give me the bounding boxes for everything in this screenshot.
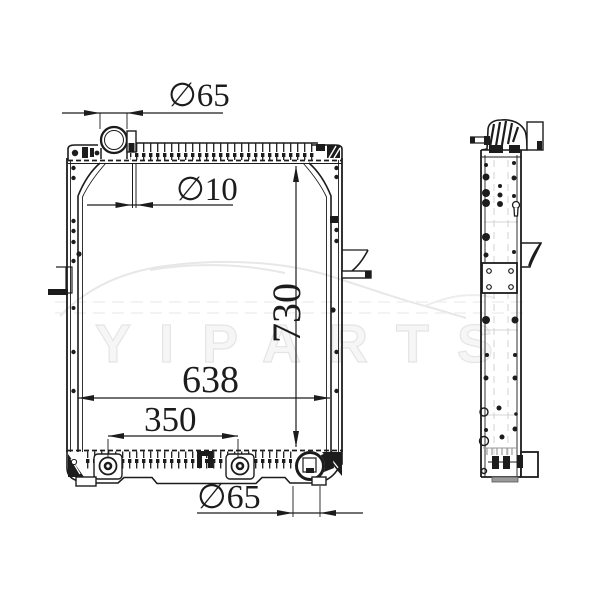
right-bracket [342, 250, 371, 278]
side-wing-bracket [521, 243, 541, 267]
dim-height: 730 [264, 166, 309, 447]
keyhole-slot [513, 202, 520, 217]
dim-bottom-diameter-label: ∅65 [197, 479, 261, 516]
dim-top-diameter: ∅65 [62, 78, 230, 129]
side-bracket-plate [482, 263, 517, 293]
dim-bottom-diameter: ∅65 [197, 479, 363, 517]
left-bracket [48, 267, 72, 295]
technical-drawing-canvas: YIPARTS [0, 0, 600, 600]
radiator-drawing: YIPARTS [0, 0, 600, 600]
side-view [470, 120, 543, 482]
filler-cap [95, 127, 136, 159]
dim-mount-spacing: 350 [108, 400, 238, 458]
dim-pipe-diameter: ∅10 [87, 172, 238, 208]
dim-pipe-diameter-label: ∅10 [176, 172, 238, 208]
mounting-bolt-right [226, 454, 254, 479]
dim-mount-spacing-label: 350 [144, 400, 197, 439]
side-top-cap [470, 120, 543, 153]
dim-top-diameter-label: ∅65 [168, 78, 230, 114]
overflow-tube [133, 163, 137, 208]
dim-width-label: 638 [182, 359, 239, 401]
dim-height-label: 730 [264, 283, 309, 343]
